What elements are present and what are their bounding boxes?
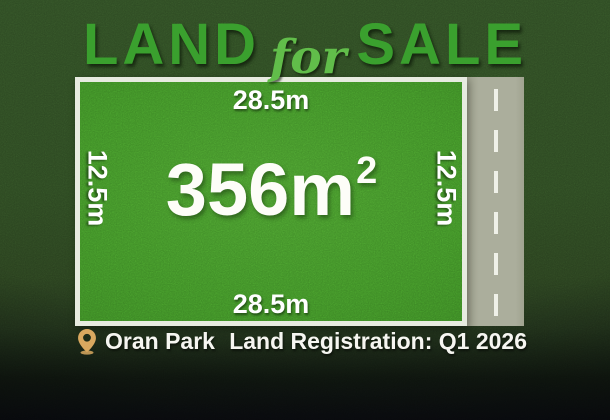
depth-dimension-left: 12.5m bbox=[84, 149, 111, 226]
headline-word-for: for bbox=[270, 34, 346, 81]
land-parcel: 28.5m 28.5m 12.5m 12.5m 356m2 bbox=[75, 77, 467, 326]
headline: LANDforSALE bbox=[0, 16, 610, 74]
footer-info-row: Oran Park Land Registration: Q1 2026 bbox=[77, 329, 527, 355]
frontage-dimension-bottom: 28.5m bbox=[80, 291, 462, 318]
frontage-dimension-top: 28.5m bbox=[80, 87, 462, 114]
road-strip bbox=[467, 77, 524, 326]
depth-dimension-right: 12.5m bbox=[433, 149, 460, 226]
parcel-area-value: 356m bbox=[166, 148, 355, 231]
location-label: Oran Park bbox=[105, 329, 215, 354]
headline-word-land: LAND bbox=[83, 12, 260, 77]
location-group: Oran Park bbox=[77, 329, 215, 355]
dashed-lane-marking bbox=[494, 89, 498, 318]
parcel-area-superscript: 2 bbox=[356, 150, 377, 192]
headline-word-sale: SALE bbox=[356, 12, 527, 77]
parcel-area-label: 356m2 bbox=[166, 153, 376, 227]
registration-label: Land Registration: Q1 2026 bbox=[229, 329, 527, 354]
location-pin-icon bbox=[77, 329, 97, 355]
flyer-canvas: LANDforSALE 28.5m 28.5m 12.5m 12.5m 356m… bbox=[0, 0, 610, 420]
